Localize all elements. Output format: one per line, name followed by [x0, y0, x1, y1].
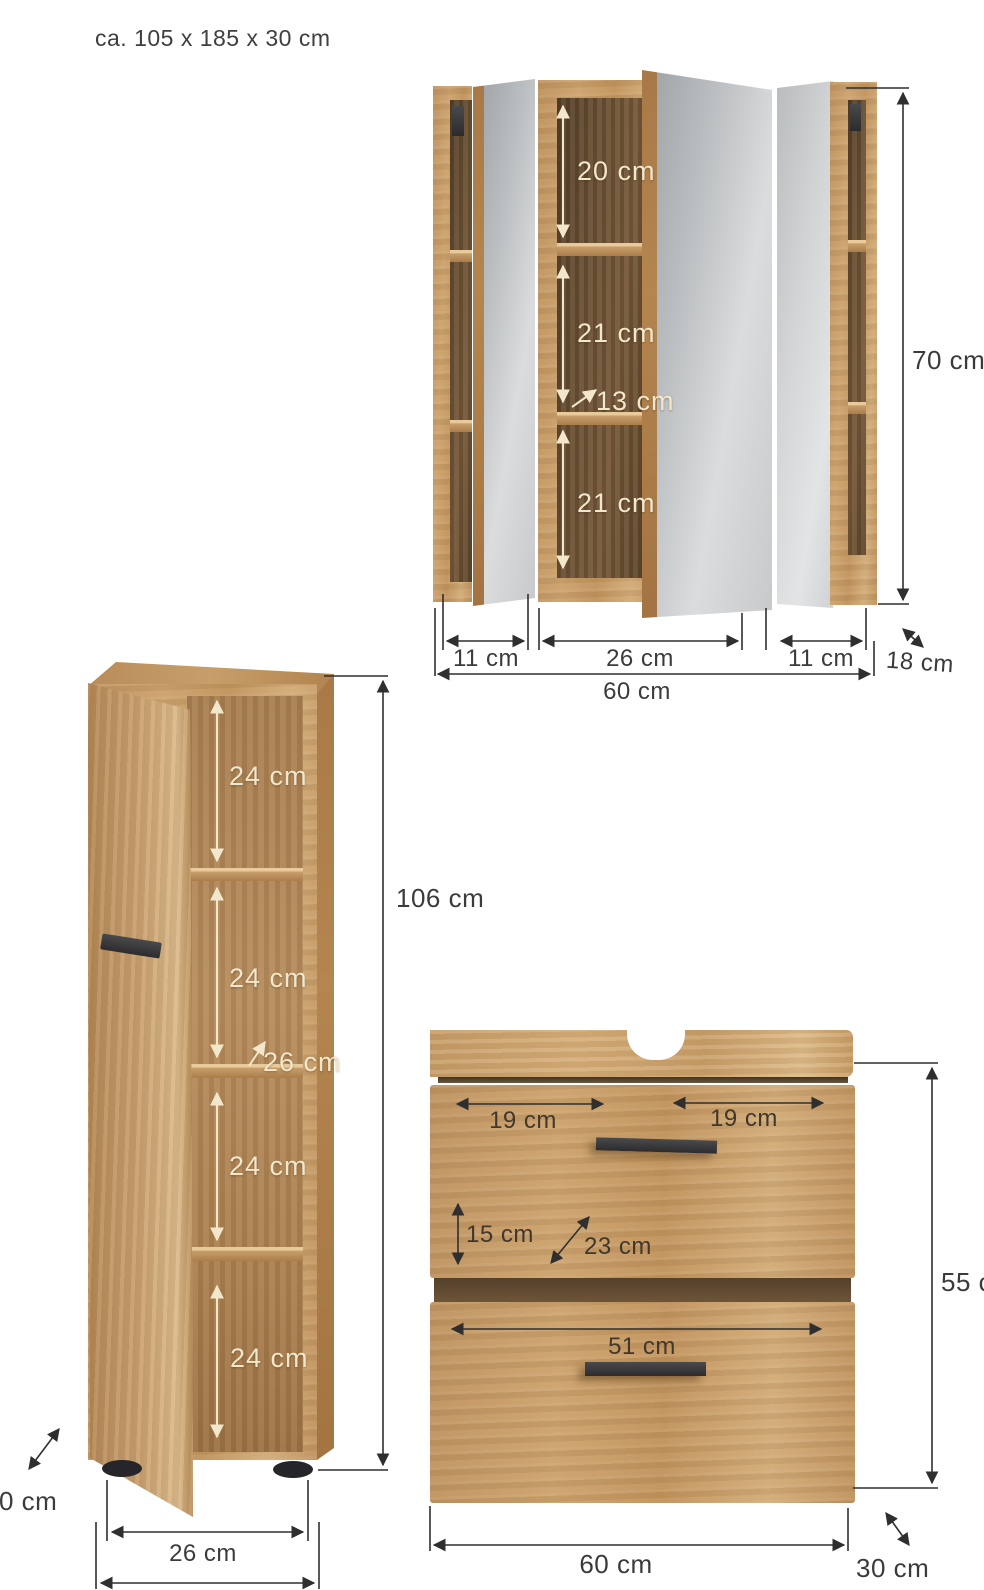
mirror-total-width-dim: 60 cm	[603, 679, 671, 705]
mirror-panel	[777, 81, 833, 608]
vanity-height-dim: 55 cm	[941, 1268, 984, 1297]
tall-cabinet-door	[86, 683, 194, 1519]
tall-cabinet-foot	[273, 1461, 313, 1478]
vanity-depth-dim: 30 cm	[856, 1554, 929, 1583]
vanity-open-gap	[434, 1278, 851, 1304]
tall-compartment1-dim: 24 cm	[229, 762, 308, 792]
vanity-diagonal-depth-dim: 23 cm	[584, 1234, 652, 1260]
mirror-cabinet-center-door	[642, 70, 772, 618]
mirror-cabinet-left-interior	[450, 100, 472, 582]
mirror-height-dim: 70 cm	[912, 346, 984, 375]
mirror-cabinet-left-door	[473, 79, 535, 606]
tall-inner-width-dim: 26 cm	[169, 1541, 237, 1567]
mirror-panel	[657, 70, 772, 618]
mirror-panel	[484, 79, 535, 606]
tall-cabinet-shelf	[187, 868, 303, 881]
mirror-right-width-dim: 11 cm	[788, 646, 854, 672]
mirror-shelf-middle-dim: 21 cm	[577, 319, 656, 349]
furniture-dimensions-diagram: ca. 105 x 185 x 30 cm	[0, 0, 984, 1590]
tall-compartment2-dim: 24 cm	[229, 964, 308, 994]
vanity-top-right-width-dim: 19 cm	[710, 1106, 778, 1132]
mirror-cabinet-left-hinge	[452, 106, 464, 136]
mirror-shelf-bottom-dim: 21 cm	[577, 489, 656, 519]
overall-dimensions-text: ca. 105 x 185 x 30 cm	[95, 26, 331, 51]
mirror-cabinet-right-hinge	[850, 104, 861, 131]
tall-shelf-depth-dim: 26 cm	[263, 1048, 342, 1078]
vanity-panel-shadow	[438, 1077, 848, 1083]
mirror-cabinet-right-shelf	[848, 240, 866, 252]
mirror-cabinet-right-interior	[848, 100, 866, 555]
mirror-cabinet-shelf	[557, 243, 645, 256]
vanity-bottom-drawer-handle	[585, 1362, 706, 1376]
tall-cabinet-foot	[102, 1460, 142, 1477]
tall-compartment3-dim: 24 cm	[229, 1152, 308, 1182]
vanity-drawer-height-dim: 15 cm	[466, 1222, 534, 1248]
tall-depth-dim: 30 cm	[0, 1487, 57, 1516]
mirror-shelf-top-dim: 20 cm	[577, 157, 656, 187]
mirror-center-width-dim: 26 cm	[606, 646, 674, 672]
tall-compartment4-dim: 24 cm	[230, 1344, 309, 1374]
vanity-drawer-width-dim: 51 cm	[608, 1334, 676, 1360]
vanity-total-width-dim: 60 cm	[579, 1550, 652, 1579]
mirror-cabinet-left-shelf	[450, 250, 472, 262]
door-edge	[473, 79, 484, 606]
mirror-cabinet-right-shelf	[848, 402, 866, 414]
mirror-left-width-dim: 11 cm	[453, 646, 519, 672]
mirror-cabinet-left-shelf	[450, 420, 472, 432]
mirror-cabinet-right-door	[777, 81, 833, 608]
mirror-shelf-depth-dim: 13 cm	[596, 387, 675, 417]
vanity-top-left-width-dim: 19 cm	[489, 1108, 557, 1134]
tall-cabinet-shelf	[187, 1247, 303, 1261]
tall-height-dim: 106 cm	[396, 884, 484, 913]
mirror-depth-dim: 18 cm	[885, 648, 955, 679]
